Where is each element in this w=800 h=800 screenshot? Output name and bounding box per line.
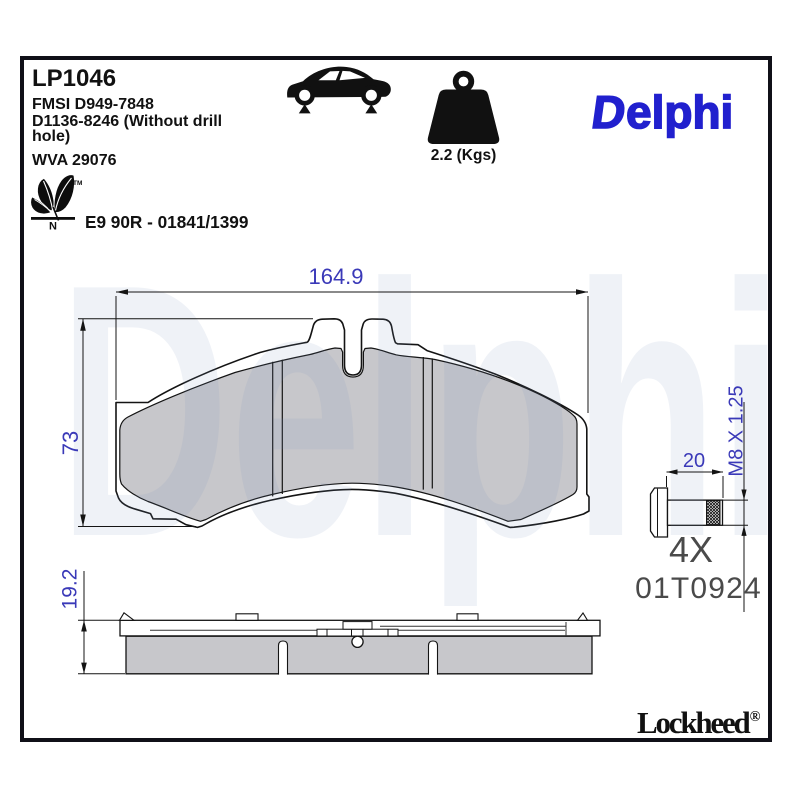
svg-text:M8 X 1.25: M8 X 1.25 xyxy=(725,385,747,476)
svg-text:LP1046: LP1046 xyxy=(32,65,116,92)
svg-text:elphi: elphi xyxy=(626,86,733,138)
svg-text:N: N xyxy=(49,221,57,233)
svg-text:Lockheed®: Lockheed® xyxy=(637,705,761,740)
svg-text:TM: TM xyxy=(73,180,82,187)
svg-text:73: 73 xyxy=(58,431,83,455)
svg-text:20: 20 xyxy=(683,450,705,472)
svg-text:E9 90R - 01841/1399: E9 90R - 01841/1399 xyxy=(85,212,248,232)
svg-text:164.9: 164.9 xyxy=(308,264,363,289)
svg-text:hole): hole) xyxy=(32,128,70,145)
svg-text:2.2 (Kgs): 2.2 (Kgs) xyxy=(431,147,496,164)
svg-text:WVA 29076: WVA 29076 xyxy=(32,152,117,169)
svg-text:FMSI D949-7848: FMSI D949-7848 xyxy=(32,96,154,113)
svg-text:01T0924: 01T0924 xyxy=(635,572,762,605)
svg-text:19.2: 19.2 xyxy=(59,569,82,610)
svg-text:4X: 4X xyxy=(669,529,713,570)
